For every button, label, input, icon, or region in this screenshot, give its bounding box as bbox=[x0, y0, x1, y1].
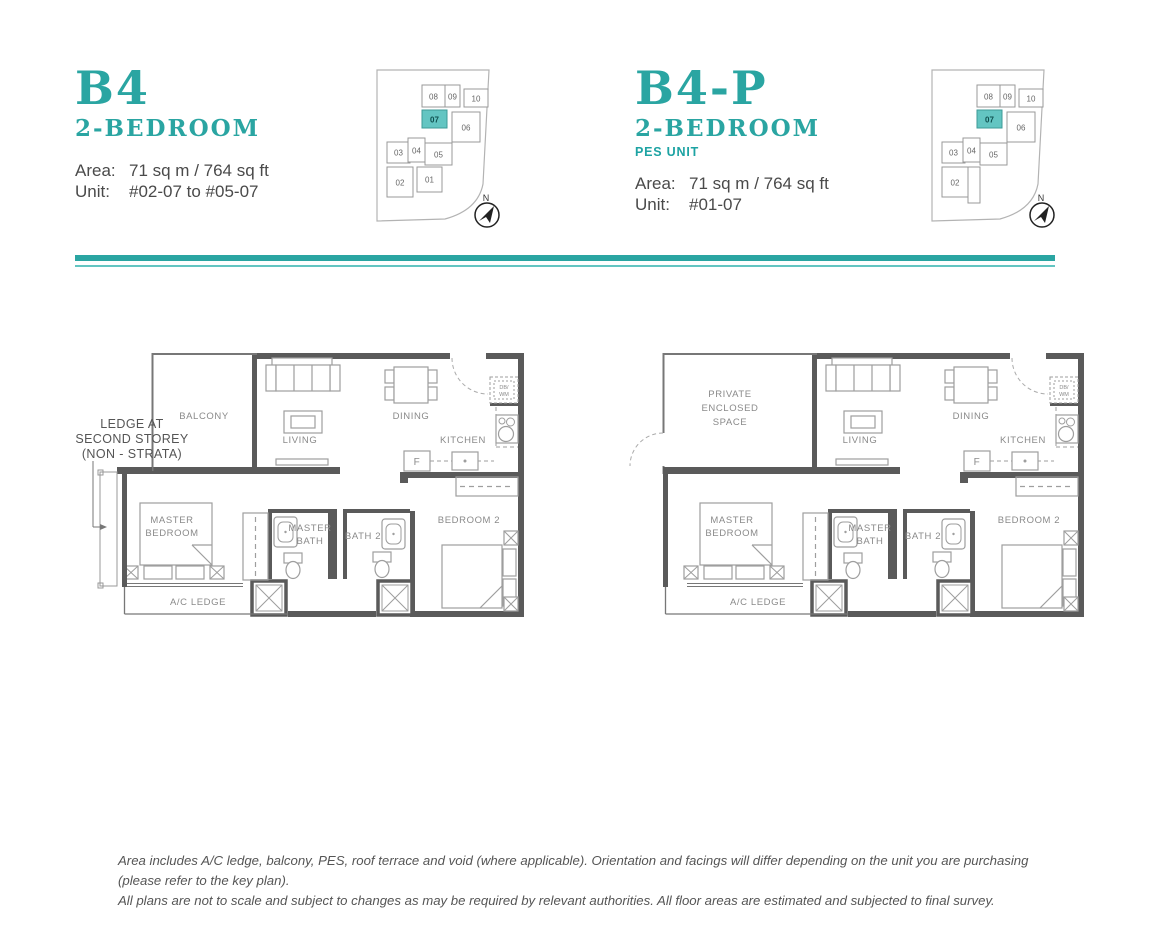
disclaimer-line-1: Area includes A/C ledge, balcony, PES, r… bbox=[118, 851, 1068, 891]
north-label: N bbox=[1038, 193, 1045, 203]
keyplan-label-06: 06 bbox=[1017, 124, 1026, 133]
b4-ledge-strip bbox=[93, 461, 117, 588]
ledge-annotation-line: LEDGE AT bbox=[55, 417, 209, 432]
keyplan-label-07: 07 bbox=[430, 116, 439, 125]
unit-code-b4p: B4-P bbox=[635, 64, 829, 112]
section-divider bbox=[75, 255, 1055, 267]
unit-type-b4: 2-BEDROOM bbox=[75, 116, 269, 142]
disclaimer-line-2: All plans are not to scale and subject t… bbox=[118, 891, 1068, 911]
room-label-pes-line: PRIVATE bbox=[708, 389, 751, 400]
keyplan-label-10: 10 bbox=[1027, 95, 1036, 104]
keyplan-label-04: 04 bbox=[967, 147, 976, 156]
keyplan-label-06: 06 bbox=[462, 124, 471, 133]
pes-gate-arc bbox=[630, 433, 663, 466]
floor-plan-b4: BALCONY bbox=[60, 333, 540, 633]
keyplan-label-07: 07 bbox=[985, 116, 994, 125]
room-label-pes-line: ENCLOSED bbox=[701, 403, 758, 414]
unit-code-b4: B4 bbox=[75, 64, 269, 112]
keyplan-label-04: 04 bbox=[412, 147, 421, 156]
room-label-pes: PRIVATE ENCLOSED SPACE bbox=[701, 389, 758, 428]
floor-plan-b4p: PRIVATE ENCLOSED SPACE bbox=[620, 333, 1100, 633]
divider-thin-line bbox=[75, 265, 1055, 267]
keyplan-label-01: 01 bbox=[425, 176, 434, 185]
keyplan-label-08: 08 bbox=[429, 93, 438, 102]
keyplan-label-05: 05 bbox=[989, 151, 998, 160]
keyplan-unit-stub bbox=[968, 167, 980, 203]
key-plan-b4p: 08 09 10 07 06 03 04 05 02 N bbox=[928, 64, 1063, 234]
north-label: N bbox=[483, 193, 490, 203]
disclaimer: Area includes A/C ledge, balcony, PES, r… bbox=[118, 851, 1068, 911]
north-compass: N bbox=[475, 193, 499, 227]
keyplan-label-08: 08 bbox=[984, 93, 993, 102]
area-label: Area: bbox=[635, 173, 689, 194]
area-value: 71 sq m / 764 sq ft bbox=[689, 174, 829, 193]
room-label-pes-line: SPACE bbox=[713, 417, 748, 428]
unit-header-b4: B4 2-BEDROOM Area:71 sq m / 764 sq ft Un… bbox=[75, 64, 269, 202]
ledge-annotation-line: (NON - STRATA) bbox=[55, 447, 209, 462]
key-plan-b4: 08 09 10 07 06 03 04 05 02 01 N bbox=[373, 64, 508, 234]
ledge-annotation: LEDGE AT SECOND STOREY (NON - STRATA) bbox=[55, 417, 209, 462]
keyplan-label-05: 05 bbox=[434, 151, 443, 160]
area-value: 71 sq m / 764 sq ft bbox=[129, 161, 269, 180]
brochure-page: B4 2-BEDROOM Area:71 sq m / 764 sq ft Un… bbox=[0, 0, 1170, 936]
unit-value: #02-07 to #05-07 bbox=[129, 182, 259, 201]
keyplan-label-10: 10 bbox=[472, 95, 481, 104]
unit-specs-b4p: Area:71 sq m / 764 sq ft Unit:#01-07 bbox=[635, 173, 829, 215]
b4p-pes: PRIVATE ENCLOSED SPACE bbox=[630, 353, 817, 474]
area-label: Area: bbox=[75, 160, 129, 181]
unit-value: #01-07 bbox=[689, 195, 742, 214]
unit-header-b4p: B4-P 2-BEDROOM PES UNIT Area:71 sq m / 7… bbox=[635, 64, 829, 215]
keyplan-label-03: 03 bbox=[949, 149, 958, 158]
keyplan-label-09: 09 bbox=[1003, 93, 1012, 102]
keyplan-label-09: 09 bbox=[448, 93, 457, 102]
divider-thick-bar bbox=[75, 255, 1055, 261]
unit-label: Unit: bbox=[635, 194, 689, 215]
north-compass: N bbox=[1030, 193, 1054, 227]
unit-label: Unit: bbox=[75, 181, 129, 202]
unit-specs-b4: Area:71 sq m / 764 sq ft Unit:#02-07 to … bbox=[75, 160, 269, 202]
unit-type-b4p: 2-BEDROOM bbox=[635, 116, 829, 142]
pes-unit-label: PES UNIT bbox=[635, 145, 829, 159]
ledge-annotation-line: SECOND STOREY bbox=[55, 432, 209, 447]
keyplan-label-02: 02 bbox=[396, 179, 405, 188]
keyplan-label-03: 03 bbox=[394, 149, 403, 158]
keyplan-label-02: 02 bbox=[951, 179, 960, 188]
